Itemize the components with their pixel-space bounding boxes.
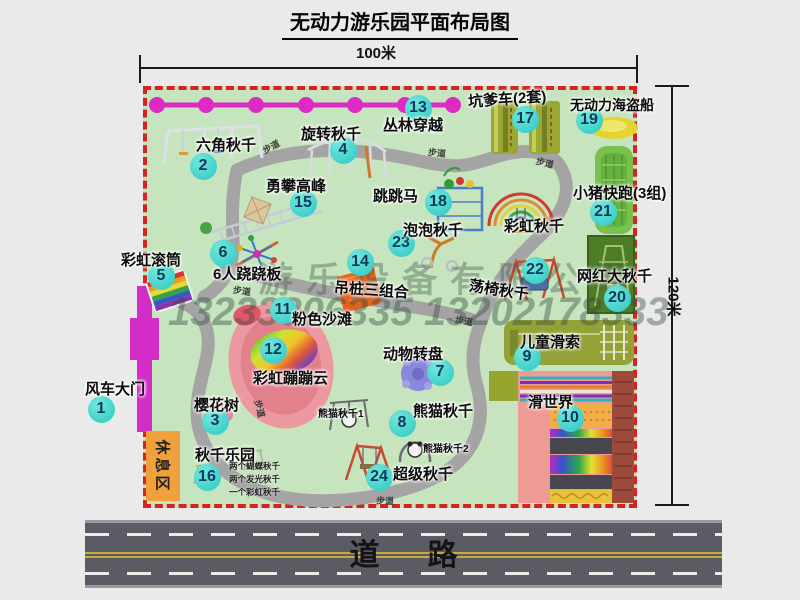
map-label-1: 风车大门 [85, 378, 145, 399]
swing-park-notes: 两个蝴蝶秋千两个发光秋千一个彩虹秋千 [229, 460, 280, 499]
extra-label-0: 彩虹秋千 [504, 215, 564, 236]
marker-circle-1: 1 [88, 396, 115, 423]
map-label-24: 超级秋千 [393, 463, 453, 484]
map-label-15: 勇攀高峰 [266, 175, 326, 196]
width-dimension-tick-right [636, 55, 638, 83]
extra-label-2: 熊猫秋千2 [423, 440, 469, 455]
map-label-6: 6人跷跷板 [213, 263, 281, 284]
extra-label-1: 熊猫秋千1 [318, 405, 364, 420]
marker-circle-22: 22 [522, 257, 549, 284]
page-title: 无动力游乐园平面布局图 [282, 6, 518, 40]
map-label-19: 无动力海盗船 [570, 95, 654, 115]
marker-circle-20: 20 [604, 285, 631, 312]
marker-circle-12: 12 [260, 337, 287, 364]
marker-circle-14: 14 [347, 249, 374, 276]
page: 无动力游乐园平面布局图 100米 120米 [0, 0, 800, 600]
map-label-8: 熊猫秋千 [413, 400, 473, 421]
rest-area-label: 休息区 [153, 439, 174, 493]
height-dimension-tick-bottom [655, 504, 689, 506]
path-label-3: 步道 [232, 283, 252, 298]
width-dimension-line [140, 67, 637, 69]
path-label-5: 步道 [376, 494, 394, 508]
path-label-1: 步道 [427, 145, 446, 160]
swing-park-note-0: 两个蝴蝶秋千 [229, 460, 280, 473]
height-dimension-label: 120米 [664, 276, 685, 316]
map-label-5: 彩虹滚筒 [121, 249, 181, 270]
width-dimension-tick-left [139, 55, 141, 83]
map-label-9: 儿童滑索 [520, 331, 580, 352]
road: 道路 [85, 520, 722, 588]
marker-circle-18: 18 [425, 189, 452, 216]
map-label-21: 小猪快跑(3组) [573, 182, 666, 203]
swing-park-note-2: 一个彩虹秋千 [229, 486, 280, 499]
map-label-20: 网红大秋千 [577, 265, 652, 286]
map-label-3: 樱花树 [194, 394, 239, 415]
map-label-11: 粉色沙滩 [292, 308, 352, 329]
map-label-23: 泡泡秋千 [403, 219, 463, 240]
swing-park-note-1: 两个发光秋千 [229, 473, 280, 486]
road-label: 道路 [85, 530, 722, 574]
marker-circle-2: 2 [190, 153, 217, 180]
marker-circle-24: 24 [366, 464, 393, 491]
marker-circle-17: 17 [512, 106, 539, 133]
map-label-10: 滑世界 [528, 391, 573, 412]
map-label-2: 六角秋千 [196, 134, 256, 155]
map-label-13: 丛林穿越 [383, 114, 443, 135]
map-label-4: 旋转秋千 [301, 123, 361, 144]
map-label-12: 彩虹蹦蹦云 [253, 367, 328, 388]
width-dimension-label: 100米 [356, 42, 396, 63]
marker-circle-16: 16 [194, 464, 221, 491]
map-label-7: 动物转盘 [383, 343, 443, 364]
map-label-18: 跳跳马 [373, 185, 418, 206]
marker-circle-8: 8 [389, 410, 416, 437]
height-dimension-tick-top [655, 85, 689, 87]
rest-area: 休息区 [146, 431, 180, 501]
